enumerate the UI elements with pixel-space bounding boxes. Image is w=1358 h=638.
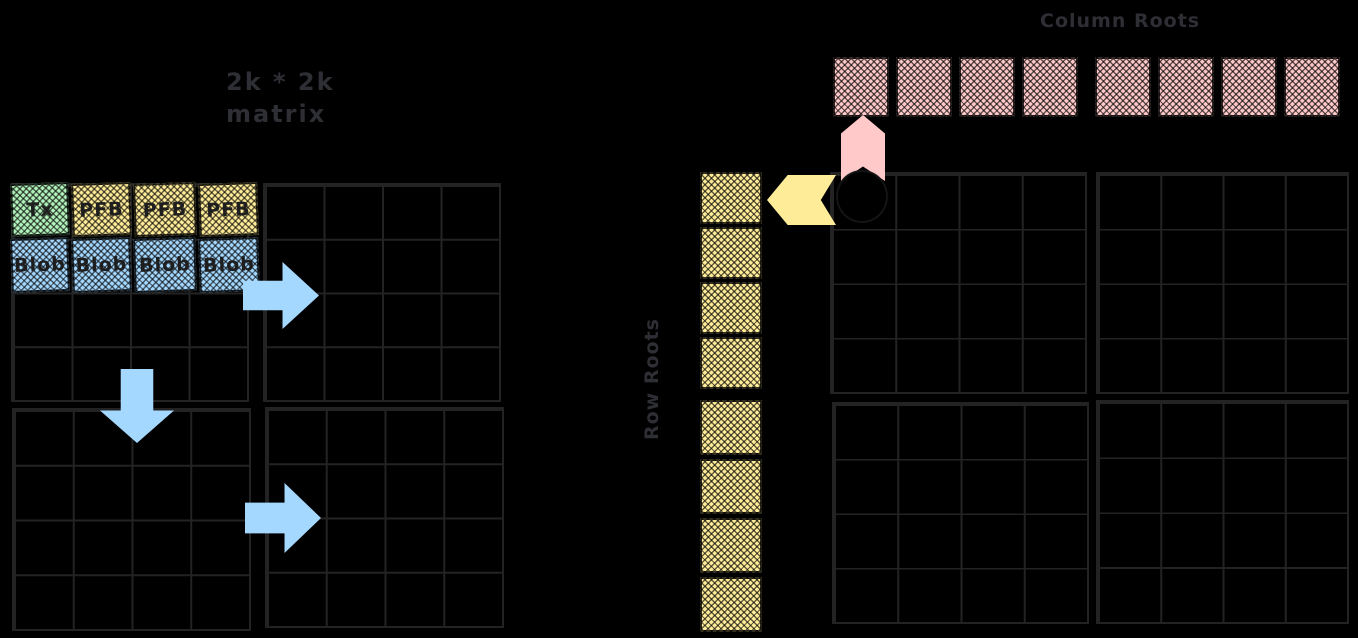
- row-root-cell: [700, 400, 762, 455]
- matrix-block-blob-2: Blob: [71, 237, 132, 293]
- row-root-cell: [700, 577, 762, 632]
- right-grid-top-right: [1096, 172, 1349, 394]
- root-block-circle: [836, 170, 888, 223]
- row-root-cell: [700, 518, 762, 573]
- column-root-cell: [959, 57, 1015, 117]
- left-arrow-icon: [767, 175, 836, 225]
- matrix-block-pfb-1: PFB: [71, 182, 132, 237]
- row-root-cell: [700, 172, 762, 224]
- column-root-cell: [1095, 57, 1151, 117]
- row-root-cell: [700, 282, 762, 334]
- row-root-cell: [700, 227, 762, 279]
- row-roots-label: Row Roots: [641, 299, 663, 459]
- matrix-block-tx: Tx: [10, 182, 70, 237]
- matrix-block-pfb-3: PFB: [198, 182, 259, 237]
- matrix-size-label: 2k * 2k matrix: [226, 66, 335, 130]
- matrix-block-blob-3: Blob: [133, 237, 197, 293]
- column-roots-label: Column Roots: [1040, 10, 1200, 32]
- right-grid-bottom-left: [832, 402, 1089, 624]
- matrix-size-line1: 2k * 2k: [226, 68, 335, 96]
- column-root-cell: [1158, 57, 1214, 117]
- matrix-size-line2: matrix: [226, 100, 326, 128]
- column-root-cell: [833, 57, 889, 117]
- right-grid-bottom-right: [1096, 400, 1349, 624]
- left-grid-bottom-left: [12, 408, 251, 631]
- matrix-block-pfb-2: PFB: [133, 182, 197, 237]
- column-root-cell: [1022, 57, 1078, 117]
- column-root-cell: [1284, 57, 1340, 117]
- column-root-cell: [896, 57, 952, 117]
- column-root-cell: [1221, 57, 1277, 117]
- matrix-block-blob-1: Blob: [10, 237, 70, 293]
- diagram-canvas: 2k * 2k matrix Tx PFB PFB PFB Blob Blob …: [0, 0, 1358, 638]
- row-root-cell: [700, 337, 762, 389]
- row-root-cell: [700, 459, 762, 514]
